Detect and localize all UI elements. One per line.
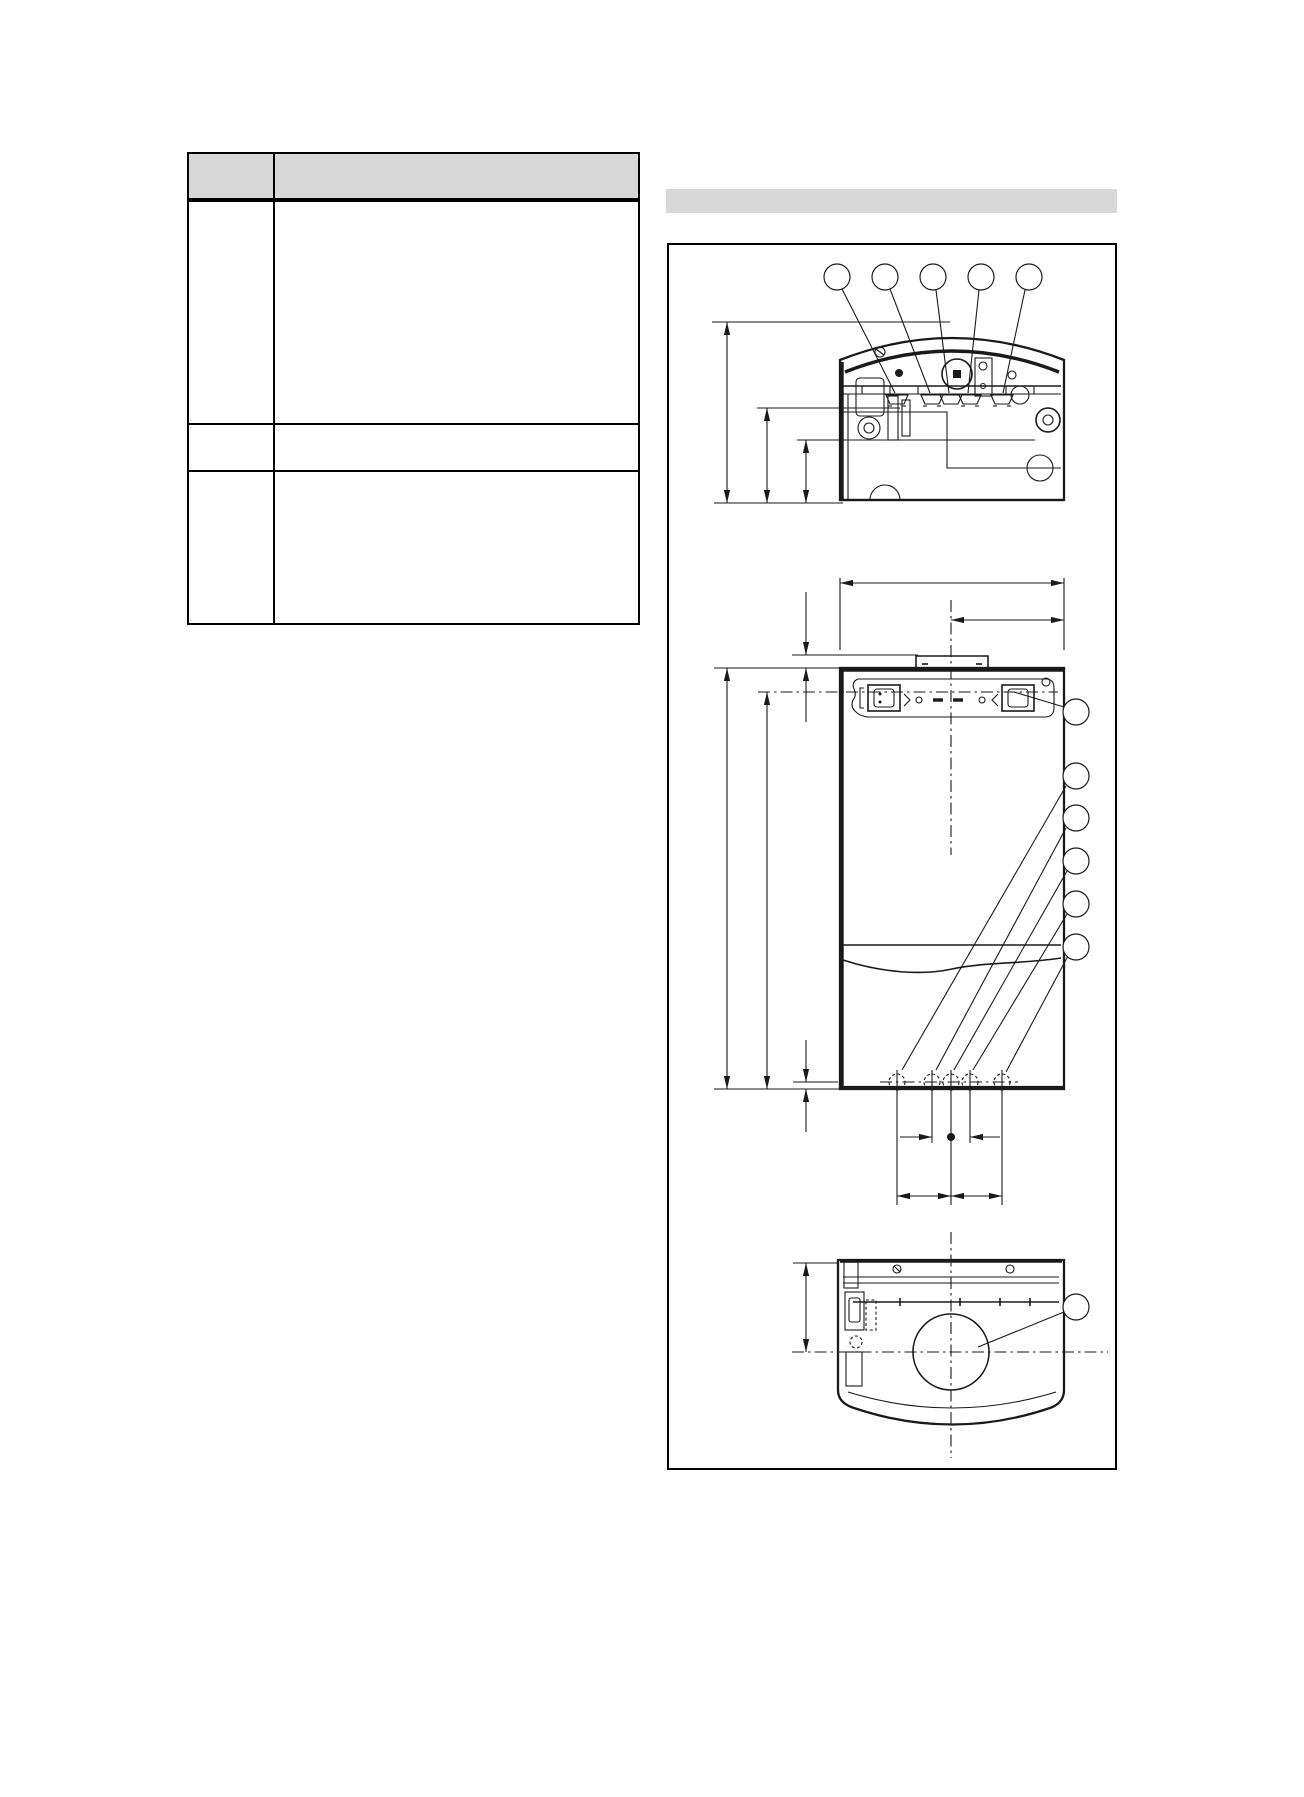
callout-circle bbox=[824, 264, 850, 290]
callout-circle bbox=[1063, 848, 1089, 874]
callout-circle bbox=[1063, 805, 1089, 831]
callout-circle bbox=[872, 264, 898, 290]
top-view-callouts bbox=[824, 264, 1042, 393]
callout-circle bbox=[1063, 1294, 1089, 1320]
callout-circle bbox=[1063, 763, 1089, 789]
callout-circle bbox=[920, 264, 946, 290]
callout-circle bbox=[1063, 934, 1089, 960]
diagram-frame bbox=[667, 243, 1117, 1470]
bottom-view bbox=[792, 1232, 1108, 1458]
table-cell bbox=[189, 202, 275, 425]
table-cell bbox=[189, 425, 275, 472]
table-cell bbox=[189, 472, 275, 623]
table-cell bbox=[275, 202, 638, 425]
top-view bbox=[712, 322, 1064, 503]
section-title-bar bbox=[666, 189, 1117, 213]
manual-page bbox=[0, 0, 1304, 1797]
callout-circle bbox=[1063, 891, 1089, 917]
data-table bbox=[187, 152, 640, 625]
table-cell bbox=[275, 472, 638, 623]
top-view-depth-dimensions bbox=[727, 322, 806, 503]
bottom-view-left-components bbox=[844, 1262, 876, 1386]
callout-circle bbox=[968, 264, 994, 290]
top-view-components bbox=[856, 347, 1060, 500]
front-view bbox=[714, 578, 1064, 1205]
callout-circle bbox=[1063, 699, 1089, 725]
bottom-view-band bbox=[853, 1298, 1059, 1306]
dimension-drawing bbox=[667, 243, 1117, 1470]
front-view-connection-strip bbox=[846, 678, 1058, 717]
table-header-cell-1 bbox=[189, 154, 275, 202]
callout-circle bbox=[1016, 264, 1042, 290]
table-cell bbox=[275, 425, 638, 472]
table-header-cell-2 bbox=[275, 154, 638, 202]
front-view-callouts bbox=[902, 692, 1089, 1072]
front-view-bottom-connections bbox=[880, 1070, 1018, 1094]
front-view-pitch-dimensions bbox=[897, 1094, 1002, 1205]
